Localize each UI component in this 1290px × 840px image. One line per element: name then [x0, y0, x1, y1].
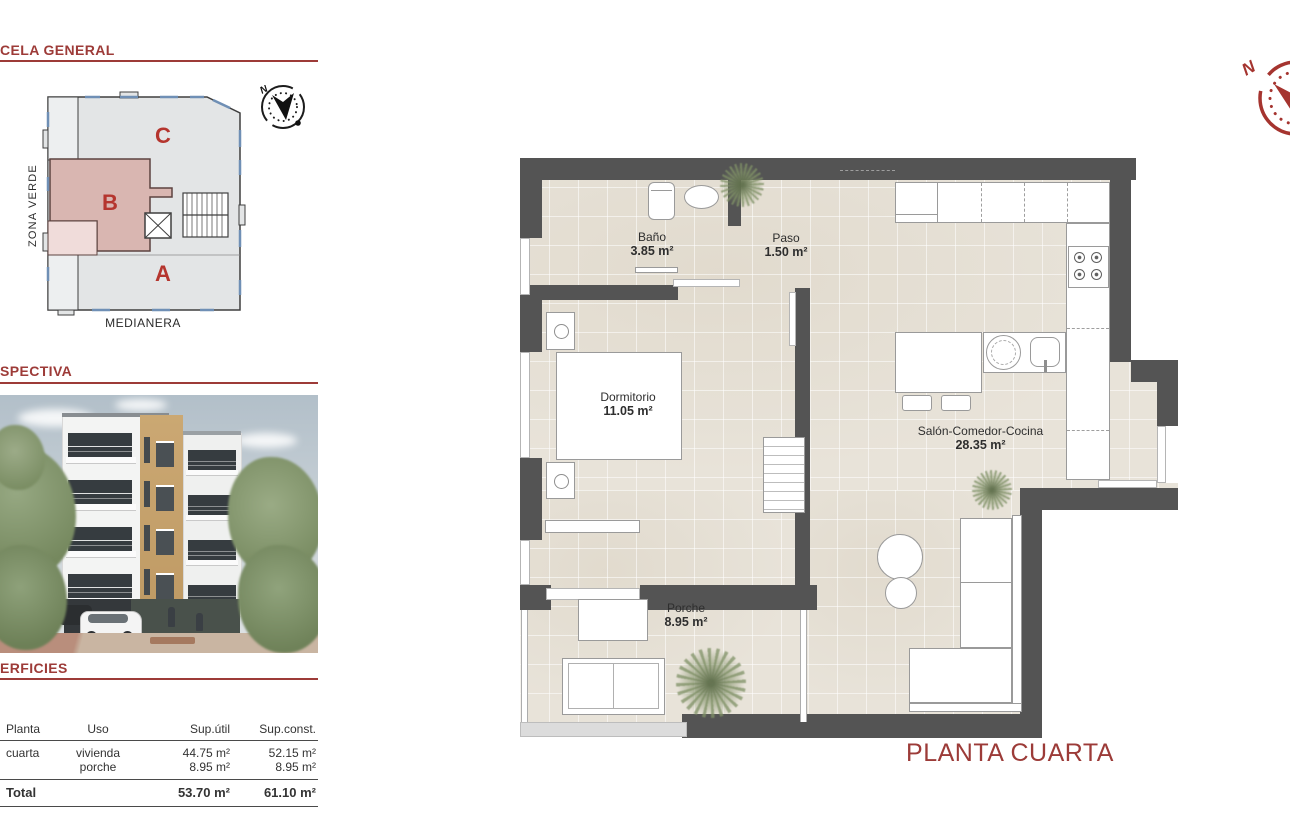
- north-compass-icon: N: [258, 85, 304, 128]
- porch-balustrade: [520, 722, 687, 737]
- room-label-salon: Salón-Comedor-Cocina 28.35 m²: [908, 424, 1053, 453]
- car-windows: [88, 614, 128, 623]
- wall: [1020, 488, 1178, 510]
- balcony-slab: [66, 504, 136, 511]
- balcony-glass: [68, 574, 132, 598]
- cabinet-divider: [1067, 183, 1068, 222]
- block-c-label: C: [155, 123, 171, 148]
- room-label-paso: Paso 1.50 m²: [726, 231, 846, 260]
- elevator-icon: [145, 213, 171, 238]
- wall: [520, 158, 1136, 180]
- total-label: Total: [0, 785, 58, 800]
- lamp-icon: [554, 474, 569, 489]
- sliding-door: [673, 279, 740, 287]
- kitchen-sink-icon: [1030, 337, 1060, 367]
- balcony-glass: [68, 480, 132, 504]
- sofa-back: [909, 703, 1022, 712]
- room-area: 3.85 m²: [592, 244, 712, 259]
- wall: [520, 158, 542, 238]
- balcony-glass: [188, 450, 236, 470]
- window: [520, 540, 530, 585]
- tan-window-slots: [144, 437, 150, 607]
- dashed-line: [840, 170, 895, 171]
- room-area: 28.35 m²: [908, 438, 1053, 453]
- perspectiva-heading: SPECTIVA: [0, 363, 72, 379]
- roofline: [183, 431, 241, 435]
- balcony-glass: [188, 540, 236, 560]
- wall: [1157, 382, 1178, 426]
- room-name: Dormitorio: [563, 390, 693, 404]
- wall: [520, 458, 542, 540]
- sofa-seat: [960, 518, 1012, 648]
- north-compass-icon: N: [1238, 48, 1290, 158]
- balcony-slab: [186, 560, 238, 566]
- balcony-slab: [186, 470, 238, 476]
- table-total-row: Total 53.70 m² 61.10 m²: [0, 779, 318, 807]
- bedroom-bench: [545, 520, 640, 533]
- zona-verde-label: ZONA VERDE: [27, 164, 39, 247]
- cell-planta: cuarta: [0, 746, 58, 760]
- dining-table: [895, 332, 982, 393]
- bath-shelf: [635, 267, 678, 273]
- bench: [150, 637, 195, 644]
- balcony-glass: [68, 527, 132, 551]
- porch-glazing: [800, 610, 807, 722]
- person-figure: [168, 607, 175, 627]
- window: [520, 352, 530, 458]
- block-b-label: B: [102, 190, 118, 215]
- palm-tree-icon: [676, 648, 746, 718]
- room-label-porche: Porche 8.95 m²: [621, 601, 751, 630]
- fridge-line: [896, 214, 937, 215]
- cell-util: 8.95 m²: [138, 760, 238, 774]
- balcony-slab: [66, 457, 136, 464]
- parcela-general-heading: CELA GENERAL: [0, 42, 115, 58]
- block-b-annex: [48, 221, 97, 255]
- medianera-label: MEDIANERA: [105, 316, 181, 330]
- sofa-seat: [909, 648, 1012, 703]
- total-const: 61.10 m²: [238, 785, 318, 800]
- tan-center-windows: [156, 441, 174, 609]
- wall: [1110, 158, 1131, 362]
- outside-mask: [1131, 158, 1178, 362]
- wall: [1131, 360, 1178, 382]
- room-name: Salón-Comedor-Cocina: [908, 424, 1053, 438]
- sofa-back: [1012, 515, 1022, 711]
- superficies-heading: ERFICIES: [0, 660, 68, 676]
- site-plan: C B A ZONA VERDE MEDIANERA N: [0, 85, 318, 337]
- window-sill: [1098, 480, 1157, 488]
- fridge-icon: [895, 182, 938, 223]
- washing-machine-icon: [986, 335, 1021, 370]
- cloud: [115, 399, 167, 411]
- balcony-slab: [66, 551, 136, 558]
- plant-icon: [720, 163, 764, 207]
- balcony-tab: [239, 205, 245, 225]
- person-figure: [196, 613, 203, 631]
- heading-rule: [0, 382, 318, 384]
- cell-const: 52.15 m²: [238, 746, 318, 760]
- round-table: [877, 534, 923, 580]
- balcony-glass: [68, 433, 132, 457]
- room-area: 11.05 m²: [563, 404, 693, 419]
- building-render: [0, 395, 318, 653]
- col-planta: Planta: [0, 722, 58, 736]
- heading-rule: [0, 60, 318, 62]
- col-sup-util: Sup.útil: [138, 722, 238, 736]
- porch-glazing: [521, 610, 528, 722]
- plan-title: PLANTA CUARTA: [850, 739, 1170, 768]
- cell-uso: vivienda: [58, 746, 138, 760]
- round-table: [885, 577, 917, 609]
- col-sup-const: Sup.const.: [238, 722, 318, 736]
- total-util: 53.70 m²: [138, 785, 238, 800]
- room-area: 1.50 m²: [726, 245, 846, 260]
- sink-icon: [684, 185, 719, 209]
- col-uso: Uso: [58, 722, 138, 736]
- chair: [902, 395, 932, 411]
- cabinet-divider: [1024, 183, 1025, 222]
- cloud: [235, 433, 297, 448]
- window: [1157, 426, 1166, 483]
- room-name: Baño: [592, 230, 712, 244]
- block-a-label: A: [155, 261, 171, 286]
- tap: [1044, 360, 1047, 372]
- toilet-tank-line: [651, 190, 672, 191]
- room-label-dormitorio: Dormitorio 11.05 m²: [563, 390, 693, 419]
- room-name: Porche: [621, 601, 751, 615]
- table-row: porche 8.95 m² 8.95 m²: [0, 760, 318, 774]
- outside-mask: [1165, 426, 1183, 483]
- wall: [520, 285, 678, 300]
- wardrobe: [763, 437, 805, 513]
- chair: [941, 395, 971, 411]
- superficies-table: Planta Uso Sup.útil Sup.const. cuarta vi…: [0, 722, 318, 807]
- stove-icon: [1068, 246, 1109, 288]
- window: [520, 238, 530, 295]
- counter-divider: [1067, 430, 1109, 431]
- cell-const: 8.95 m²: [238, 760, 318, 774]
- wall: [520, 295, 542, 352]
- table-row: cuarta vivienda 44.75 m² 52.15 m²: [0, 746, 318, 760]
- stairs-icon: [183, 193, 228, 237]
- porch-sofa: [562, 658, 665, 715]
- door-leaf: [789, 292, 796, 346]
- counter-divider: [1067, 328, 1109, 329]
- wall: [1020, 488, 1042, 717]
- cell-util: 44.75 m²: [138, 746, 238, 760]
- room-area: 8.95 m²: [621, 615, 751, 630]
- floor-plan: Baño 3.85 m² Paso 1.50 m² Dormitorio 11.…: [505, 140, 1205, 772]
- cabinet-divider: [981, 183, 982, 222]
- table-header-row: Planta Uso Sup.útil Sup.const.: [0, 722, 318, 741]
- heading-rule: [0, 678, 318, 680]
- compass-n-label: N: [1239, 57, 1260, 80]
- cell-uso: porche: [58, 760, 138, 774]
- lamp-icon: [554, 324, 569, 339]
- wall: [682, 714, 1042, 738]
- plant-icon: [972, 470, 1012, 510]
- toilet-icon: [648, 182, 675, 220]
- room-label-bano: Baño 3.85 m²: [592, 230, 712, 259]
- room-name: Paso: [726, 231, 846, 245]
